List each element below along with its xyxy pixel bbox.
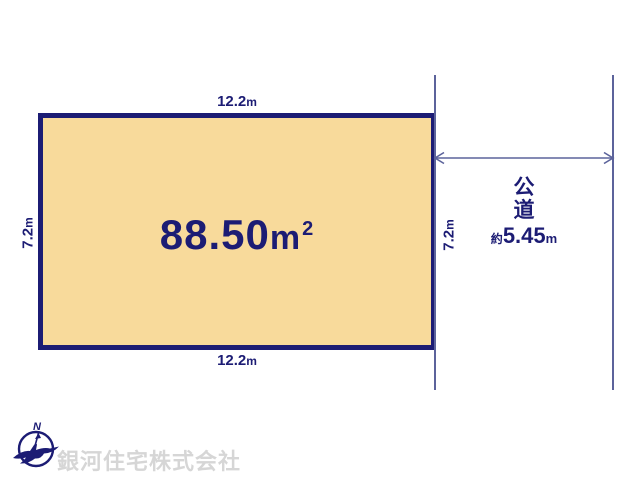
road-width-unit: m [546,231,558,246]
dimension-extension-line-left [434,75,436,390]
dimension-height-right-value: 7.2 [441,230,458,251]
dimension-height-left-value: 7.2 [20,228,37,249]
road-width-arrow [428,149,618,167]
compass-bird-logo: N [11,420,63,474]
road-width-prefix: 約 [491,232,503,246]
dimension-height-left-unit: m [22,217,36,228]
road-width-label: 約5.45m [491,225,557,247]
road-name-char2: 道 [491,199,557,222]
company-watermark: 銀河住宅株式会社 [57,444,241,476]
compass-north-letter: N [33,421,42,433]
dimension-height-right: 7.2m [441,219,458,251]
road-label: 公 道 約5.45m [491,176,557,247]
dimension-width-top: 12.2m [38,93,436,110]
parcel-area-superscript: 2 [302,218,314,240]
road-width-value: 5.45 [503,223,546,248]
dimension-width-bottom-unit: m [246,354,257,368]
parcel-area-value: 88.50 [160,211,270,258]
dimension-height-left: 7.2m [20,217,37,249]
dimension-height-right-unit: m [443,219,457,230]
dimension-extension-line-right [612,75,614,390]
road-name-char1: 公 [491,176,557,199]
dimension-width-bottom: 12.2m [38,352,436,369]
dimension-width-top-unit: m [246,95,257,109]
parcel-area-unit: m [270,219,301,257]
north-needle-icon [35,433,41,439]
land-parcel: 88.50m2 [38,113,436,350]
dimension-width-top-value: 12.2 [217,93,246,110]
dimension-width-bottom-value: 12.2 [217,352,246,369]
parcel-area-label: 88.50m2 [160,214,314,256]
land-plot-diagram: 88.50m2 12.2m 12.2m 7.2m 7.2m 公 道 約5.45m… [0,0,640,480]
